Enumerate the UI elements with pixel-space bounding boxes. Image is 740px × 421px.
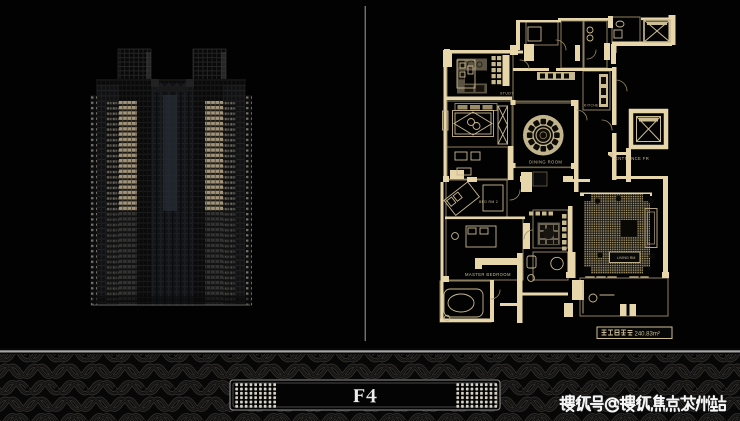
svg-text:KITCHEN: KITCHEN [584,104,602,108]
svg-text:MASTER BEDROOM: MASTER BEDROOM [465,272,511,277]
svg-text:240.83m²: 240.83m² [635,331,660,337]
svg-text:BED RM 2: BED RM 2 [479,200,498,204]
svg-text:DINING ROOM: DINING ROOM [529,160,562,165]
svg-text:ENTRANCE FR: ENTRANCE FR [615,156,649,161]
svg-text:LIVING RM: LIVING RM [617,256,635,260]
svg-text:STUDY: STUDY [500,92,514,96]
